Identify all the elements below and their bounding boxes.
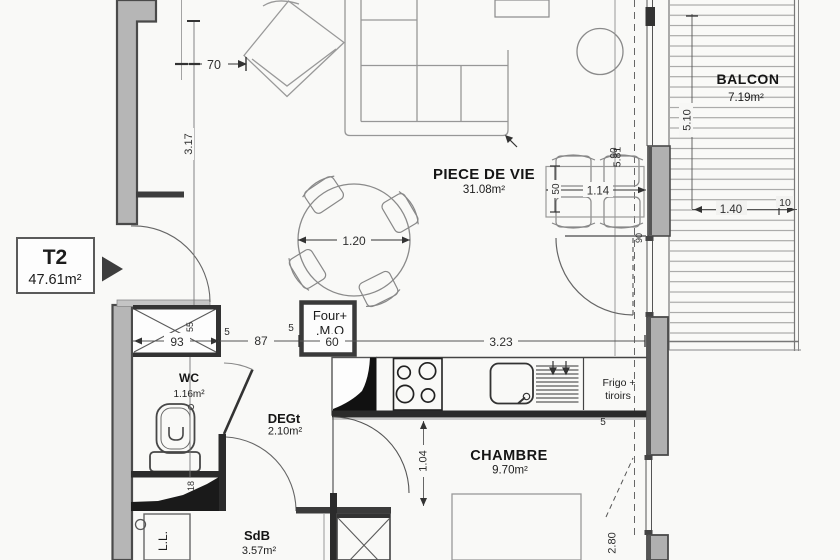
- svg-text:3.57m²: 3.57m²: [242, 545, 277, 557]
- svg-text:47.61m²: 47.61m²: [28, 272, 81, 288]
- svg-text:3.17: 3.17: [183, 133, 195, 154]
- svg-text:tiroirs: tiroirs: [605, 390, 631, 402]
- svg-text:5: 5: [600, 417, 606, 428]
- svg-text:93: 93: [170, 335, 184, 349]
- svg-text:1.16m²: 1.16m²: [173, 389, 205, 400]
- svg-text:T2: T2: [43, 246, 68, 269]
- svg-text:1.40: 1.40: [720, 204, 742, 216]
- svg-text:5: 5: [288, 323, 294, 334]
- svg-text:1.20: 1.20: [342, 234, 366, 248]
- svg-text:9.70m²: 9.70m²: [492, 465, 528, 477]
- svg-text:1.04: 1.04: [418, 450, 430, 471]
- svg-text:60: 60: [325, 335, 339, 349]
- svg-text:L.L.: L.L.: [156, 531, 170, 551]
- svg-text:2.80: 2.80: [607, 532, 619, 553]
- svg-text:5.81: 5.81: [612, 147, 624, 168]
- svg-text:1.14: 1.14: [587, 186, 610, 198]
- svg-text:Four+: Four+: [313, 308, 347, 323]
- svg-text:DEGt: DEGt: [268, 411, 301, 426]
- svg-text:50: 50: [551, 183, 562, 195]
- svg-text:SdB: SdB: [244, 528, 270, 543]
- svg-text:Frigo +: Frigo +: [603, 377, 636, 389]
- svg-text:70: 70: [207, 58, 221, 72]
- svg-text:3.23: 3.23: [489, 335, 513, 349]
- svg-text:7.19m²: 7.19m²: [728, 92, 764, 104]
- svg-text:5: 5: [224, 327, 230, 338]
- svg-text:90: 90: [634, 233, 644, 243]
- svg-text:10: 10: [779, 197, 791, 209]
- svg-text:WC: WC: [179, 371, 199, 385]
- svg-text:87: 87: [254, 334, 268, 348]
- svg-text:BALCON: BALCON: [717, 71, 780, 87]
- svg-text:PIECE DE VIE: PIECE DE VIE: [433, 166, 535, 183]
- svg-text:18: 18: [186, 481, 196, 491]
- svg-text:5.10: 5.10: [682, 109, 694, 130]
- svg-text:2.10m²: 2.10m²: [268, 426, 303, 438]
- svg-text:55: 55: [185, 322, 195, 332]
- svg-text:31.08m²: 31.08m²: [463, 184, 505, 196]
- svg-text:CHAMBRE: CHAMBRE: [470, 448, 548, 464]
